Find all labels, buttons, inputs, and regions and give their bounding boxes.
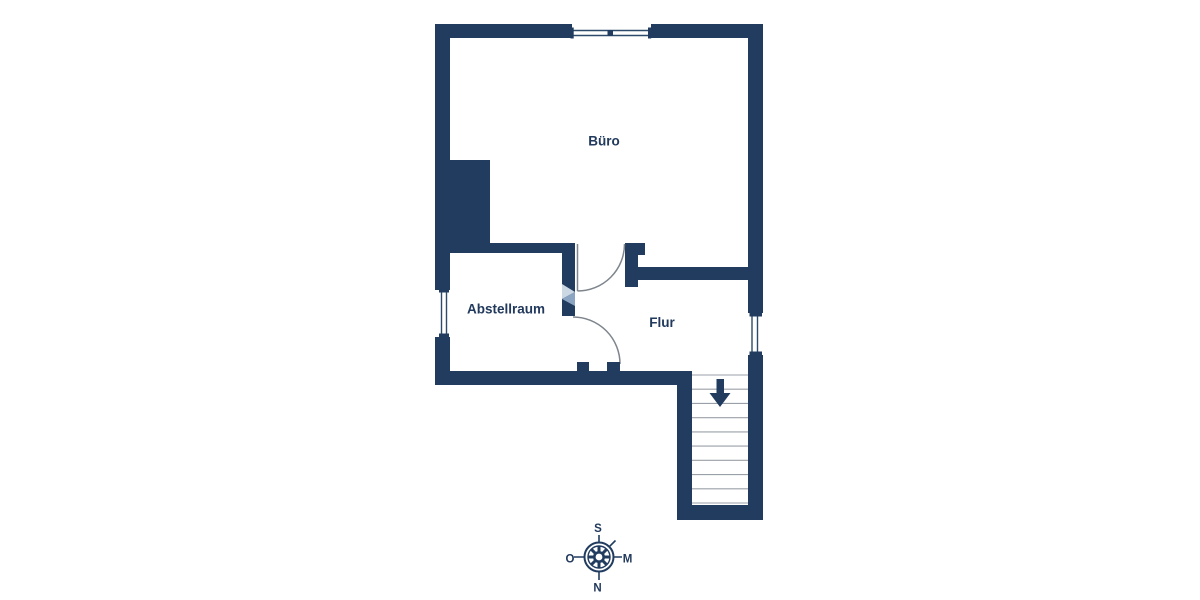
door-swing-arc: [573, 317, 620, 364]
room-label-buero: Büro: [588, 134, 620, 149]
window-left-glazing: [442, 290, 447, 337]
compass-label-top: S: [594, 523, 602, 535]
window-right-cap-top: [750, 313, 763, 317]
stair-left-wall: [677, 371, 692, 520]
floorplan-drawing: Büro Abstellraum Flur S M N O: [0, 0, 1200, 600]
window-left-cap-top: [439, 289, 449, 293]
arrow-stem: [717, 379, 725, 394]
window-right-cap-bottom: [750, 352, 763, 356]
door-abstellraum-flur: [573, 317, 620, 371]
door-jamb-tick-right: [607, 362, 620, 371]
window-right-glazing: [752, 313, 758, 355]
chimney-block: [450, 160, 490, 243]
compass-label-right: M: [623, 554, 633, 566]
compass-hub-hole: [596, 554, 603, 561]
door-buero-flur: [578, 244, 625, 291]
top-wall-right: [651, 24, 763, 38]
compass-label-left: O: [566, 554, 575, 566]
floorplan-page: Büro Abstellraum Flur S M N O: [0, 0, 1200, 600]
compass-rose: S M N O: [566, 523, 633, 595]
compass-label-bottom: N: [593, 583, 601, 595]
window-top-mullion: [608, 30, 614, 36]
flur-top-wall: [637, 267, 748, 280]
door-swing-arc: [578, 244, 625, 291]
abstellraum-right-wall: [562, 243, 575, 316]
arrow-head: [710, 393, 731, 407]
right-wall-lower: [748, 355, 763, 520]
right-wall-upper: [748, 24, 763, 313]
stairs-down-arrow-icon: [710, 379, 731, 407]
window-left: [439, 289, 449, 337]
window-top: [571, 28, 652, 39]
top-wall-left: [435, 24, 572, 38]
door-jamb-tick-left: [577, 362, 589, 371]
window-top-cap-left: [571, 28, 574, 39]
room-label-flur: Flur: [649, 315, 675, 330]
window-top-cap-right: [648, 28, 651, 39]
stair-bottom-wall: [677, 505, 763, 520]
window-left-cap-bottom: [439, 334, 449, 338]
window-right: [750, 313, 763, 355]
room-label-abstellraum: Abstellraum: [467, 302, 545, 317]
abstellraum-top-wall: [435, 243, 575, 253]
bottom-wall: [435, 371, 692, 385]
staircase: [692, 375, 748, 503]
buero-door-jamb: [625, 243, 638, 287]
